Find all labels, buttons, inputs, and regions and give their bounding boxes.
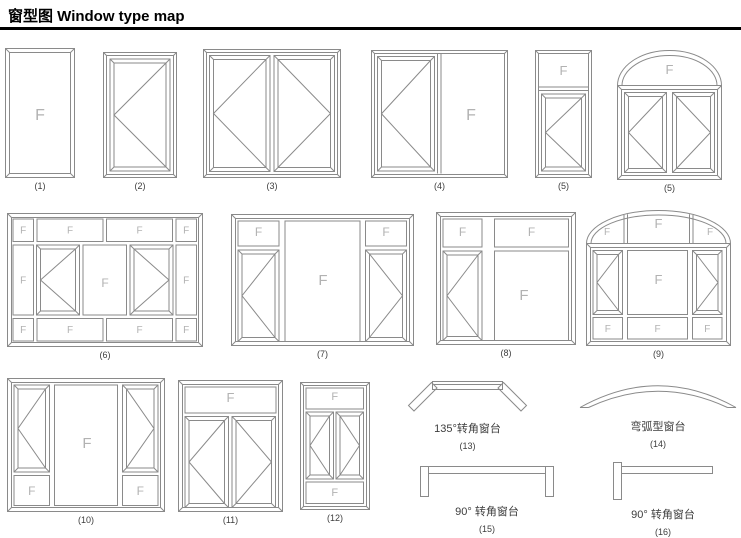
figure-number: (14): [578, 439, 738, 449]
figure-number: (1): [5, 181, 75, 191]
sill-90-corner-drawing: [420, 463, 554, 497]
fixed-pane-label: F: [654, 324, 660, 335]
window-7-combination: FFF(7): [231, 214, 414, 359]
fixed-pane-label: F: [255, 225, 262, 239]
window-4-casement-fixed: F(4): [371, 50, 508, 191]
window-5-arched-double-casement: F(5): [617, 50, 722, 193]
window-1-fixed: F(1): [5, 48, 75, 191]
window-12-transom-double-casement: FF(12): [300, 382, 370, 523]
window-6-combination: FFFFFFFFFFF(6): [7, 213, 203, 360]
fixed-pane-label: F: [20, 276, 26, 287]
fixed-pane-label: F: [707, 227, 713, 238]
window-5-top-fixed-casement: F(5): [535, 50, 592, 191]
fixed-pane-label: F: [519, 287, 528, 304]
fixed-pane-label: F: [20, 325, 26, 336]
figure-caption: 弯弧型窗台: [578, 421, 738, 433]
figure-caption: 90° 转角窗台: [613, 509, 713, 521]
sill-135-corner: 135°转角窗台(13): [405, 378, 530, 451]
figure-caption: 135°转角窗台: [405, 423, 530, 435]
window-5-arched-double-casement-drawing: F: [617, 50, 722, 180]
fixed-pane-label: F: [183, 325, 189, 336]
fixed-pane-label: F: [136, 325, 142, 336]
fixed-pane-label: F: [605, 324, 611, 335]
sill-90-corner-l: 90° 转角窗台(16): [613, 462, 713, 537]
figure-number: (5): [617, 183, 722, 193]
figure-number: (15): [420, 524, 554, 534]
fixed-pane-label: F: [655, 272, 663, 287]
window-5-top-fixed-casement-drawing: F: [535, 50, 592, 178]
window-7-combination-drawing: FFF: [231, 214, 414, 346]
page-title: 窗型图 Window type map: [8, 5, 185, 26]
fixed-pane-label: F: [20, 226, 26, 237]
figure-number: (2): [103, 181, 177, 191]
figure-number: (5): [535, 181, 592, 191]
window-type-map-page: 窗型图 Window type map F(1)(2)(3)F(4)F(5)F(…: [0, 0, 741, 538]
figure-caption: 90° 转角窗台: [420, 506, 554, 518]
figure-number: (9): [586, 349, 731, 359]
fixed-pane-label: F: [82, 435, 91, 452]
fixed-pane-label: F: [227, 390, 235, 405]
fixed-pane-label: F: [318, 272, 327, 289]
figure-number: (6): [7, 350, 203, 360]
fixed-pane-label: F: [67, 325, 73, 336]
window-2-casement: (2): [103, 52, 177, 191]
window-10-combination-drawing: FFF: [7, 378, 165, 512]
fixed-pane-label: F: [655, 216, 663, 231]
window-4-casement-fixed-drawing: F: [371, 50, 508, 178]
fixed-pane-label: F: [466, 107, 476, 124]
fixed-pane-label: F: [666, 62, 674, 77]
title-rule: [0, 27, 741, 30]
window-3-double-casement: (3): [203, 49, 341, 191]
fixed-pane-label: F: [704, 324, 710, 335]
fixed-pane-label: F: [331, 391, 338, 403]
sill-90-corner-l-drawing: [613, 462, 713, 500]
window-9-arched-combination-drawing: FFFFFFF: [586, 210, 731, 346]
sill-90-corner: 90° 转角窗台(15): [420, 463, 554, 534]
window-9-arched-combination: FFFFFFF(9): [586, 210, 731, 359]
fixed-pane-label: F: [382, 225, 389, 239]
fixed-pane-label: F: [331, 487, 338, 499]
fixed-pane-label: F: [137, 484, 144, 498]
sill-curved-drawing: [578, 380, 738, 412]
fixed-pane-label: F: [28, 484, 35, 498]
figure-number: (8): [436, 348, 576, 358]
fixed-pane-label: F: [183, 276, 189, 287]
window-8-combination-drawing: FFF: [436, 212, 576, 345]
window-2-casement-drawing: [103, 52, 177, 178]
fixed-pane-label: F: [35, 107, 45, 124]
figure-number: (11): [178, 515, 283, 525]
figure-number: (10): [7, 515, 165, 525]
fixed-pane-label: F: [101, 276, 108, 290]
figure-number: (13): [405, 441, 530, 451]
fixed-pane-label: F: [528, 225, 535, 239]
fixed-pane-label: F: [459, 225, 466, 239]
window-8-combination: FFF(8): [436, 212, 576, 358]
window-11-transom-double-casement-drawing: F: [178, 380, 283, 512]
sill-curved: 弯弧型窗台(14): [578, 380, 738, 449]
figure-number: (16): [613, 527, 713, 537]
figure-number: (4): [371, 181, 508, 191]
figure-number: (12): [300, 513, 370, 523]
window-10-combination: FFF(10): [7, 378, 165, 525]
window-12-transom-double-casement-drawing: FF: [300, 382, 370, 510]
window-3-double-casement-drawing: [203, 49, 341, 178]
fixed-pane-label: F: [183, 226, 189, 237]
fixed-pane-label: F: [67, 226, 73, 237]
window-1-fixed-drawing: F: [5, 48, 75, 178]
window-11-transom-double-casement: F(11): [178, 380, 283, 525]
figure-number: (3): [203, 181, 341, 191]
sill-135-corner-drawing: [405, 378, 530, 414]
window-6-combination-drawing: FFFFFFFFFFF: [7, 213, 203, 347]
fixed-pane-label: F: [560, 63, 568, 78]
fixed-pane-label: F: [136, 226, 142, 237]
figure-number: (7): [231, 349, 414, 359]
fixed-pane-label: F: [604, 227, 610, 238]
